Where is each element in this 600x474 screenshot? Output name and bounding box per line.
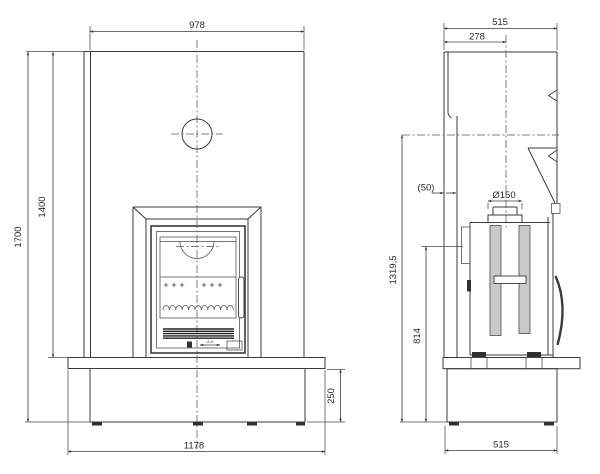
dim-front-base-width: 1178 — [68, 370, 325, 455]
dim-flue-offset-label: 278 — [469, 32, 485, 43]
stove-foot — [527, 352, 541, 358]
dim-front-height-total-label: 1700 — [13, 226, 24, 247]
bench-and-plinth — [68, 358, 325, 426]
side-casing-outline — [444, 52, 560, 358]
air-grille — [163, 329, 234, 338]
air-outlet-arrow — [549, 90, 558, 101]
dim-front-base-width-label: 1178 — [184, 441, 204, 452]
dim-front-height-opening-label: 1400 — [37, 196, 48, 217]
door-mini-dimension-label: 2-0 — [207, 339, 214, 344]
dim-front-height-total: 1700 — [13, 52, 90, 422]
fireplace-dimension-drawing: 2-0 978 1700 — [0, 0, 600, 474]
plinth-foot — [544, 422, 554, 426]
plinth-foot — [296, 422, 305, 426]
dim-side-depth-base: 515 — [445, 426, 557, 454]
door-mini-dimension: 2-0 — [200, 339, 220, 345]
flame-wave — [163, 306, 233, 310]
slot-crossbar — [494, 276, 526, 284]
stove-body-side — [462, 213, 563, 358]
air-holes-row — [164, 283, 222, 287]
dim-height-flue-line: 1319,5 — [388, 135, 402, 422]
plinth-foot — [92, 422, 102, 426]
dim-front-height-opening: 1400 — [37, 52, 68, 358]
flue-pipe — [488, 207, 522, 223]
dim-rear-gap-label: (50) — [418, 183, 435, 194]
air-lever-knob — [187, 342, 192, 348]
side-bench-and-plinth — [443, 358, 580, 426]
rear-tab — [467, 280, 471, 292]
flue-knockout-circle — [171, 119, 223, 149]
dim-side-depth-top: 515 — [444, 17, 557, 50]
door-handle — [239, 277, 245, 318]
dim-height-rear-detail: 814 — [400, 247, 463, 423]
dim-rear-gap: (50) — [418, 183, 456, 194]
side-view: 515 278 (50) Ø150 1319,5 — [388, 17, 580, 454]
front-lip-bracket — [552, 204, 561, 214]
stove-door: 2-0 — [151, 226, 245, 353]
front-view: 2-0 978 1700 — [13, 20, 345, 455]
dim-height-flue-line-label: 1319,5 — [388, 255, 399, 284]
door-handle-side — [556, 276, 563, 345]
dim-front-base-height-label: 250 — [326, 388, 337, 404]
dim-front-width-top-label: 978 — [189, 20, 205, 31]
dim-flue-diameter: Ø150 — [488, 190, 522, 209]
stove-foot — [472, 352, 486, 358]
technical-drawing-canvas: 2-0 978 1700 — [0, 0, 600, 474]
plinth-foot — [193, 422, 203, 426]
air-outlet-arrow — [549, 150, 558, 162]
dim-side-depth-base-label: 515 — [493, 440, 509, 451]
dim-height-rear-detail-label: 814 — [412, 328, 423, 344]
plinth-foot — [247, 422, 257, 426]
dim-flue-offset: 278 — [444, 32, 506, 43]
dim-front-base-height: 250 — [307, 370, 345, 423]
plinth-foot — [449, 422, 459, 426]
front-casing-outline — [26, 52, 304, 358]
rear-bracket — [462, 227, 471, 264]
dim-side-depth-top-label: 515 — [492, 17, 508, 28]
dim-flue-diameter-label: Ø150 — [492, 190, 515, 201]
